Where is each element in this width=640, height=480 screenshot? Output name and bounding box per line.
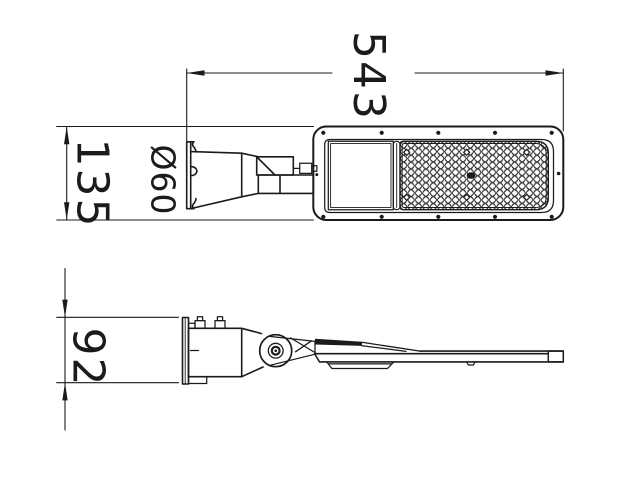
tilt-pivot-joint bbox=[260, 335, 316, 367]
arm-lower-box bbox=[258, 175, 313, 193]
head-bottom-edge bbox=[315, 354, 563, 362]
pole-notch bbox=[191, 167, 197, 176]
top-view: 543 135 Ø60 bbox=[57, 31, 564, 228]
lamp-head-side bbox=[315, 339, 563, 369]
arm-cover-contours bbox=[362, 342, 420, 351]
arrowhead-down bbox=[62, 300, 67, 318]
clamp-bolt-tip bbox=[197, 317, 202, 321]
dim-overall-length-label: 543 bbox=[343, 31, 394, 121]
bracket-body bbox=[189, 328, 242, 376]
arm-upper-box bbox=[257, 157, 294, 175]
arm-cover-edge bbox=[315, 339, 362, 346]
clamp-bolt-tip bbox=[217, 317, 222, 321]
driver-compartment-inner bbox=[331, 144, 391, 208]
clamp-bolt bbox=[195, 321, 205, 329]
mounting-arm-plan bbox=[191, 152, 319, 209]
technical-drawing-canvas: 543 135 Ø60 bbox=[0, 0, 640, 480]
arm-body bbox=[191, 152, 242, 209]
arrowhead-right bbox=[546, 70, 564, 75]
center-sensor-plug bbox=[467, 172, 476, 179]
dim-head-width-label: 135 bbox=[67, 139, 118, 229]
dim-pole-diameter-label: Ø60 bbox=[144, 145, 183, 216]
bell-flare-top bbox=[193, 142, 196, 152]
clamp-bolt bbox=[215, 321, 225, 329]
driver-compartment bbox=[328, 141, 393, 209]
side-view: 92 bbox=[57, 269, 564, 431]
head-top-edges bbox=[315, 351, 563, 354]
heatsink-tray bbox=[327, 362, 394, 369]
dim-mount-height-label: 92 bbox=[63, 328, 114, 388]
pivot-axle bbox=[274, 349, 277, 352]
arm-transition bbox=[242, 153, 259, 197]
bracket-foot bbox=[189, 377, 207, 384]
pole-clamp-side bbox=[183, 317, 264, 384]
end-cap bbox=[548, 351, 563, 362]
arrowhead-left bbox=[187, 70, 205, 75]
gland-screw bbox=[315, 173, 318, 176]
lamp-head-plan bbox=[313, 127, 563, 221]
